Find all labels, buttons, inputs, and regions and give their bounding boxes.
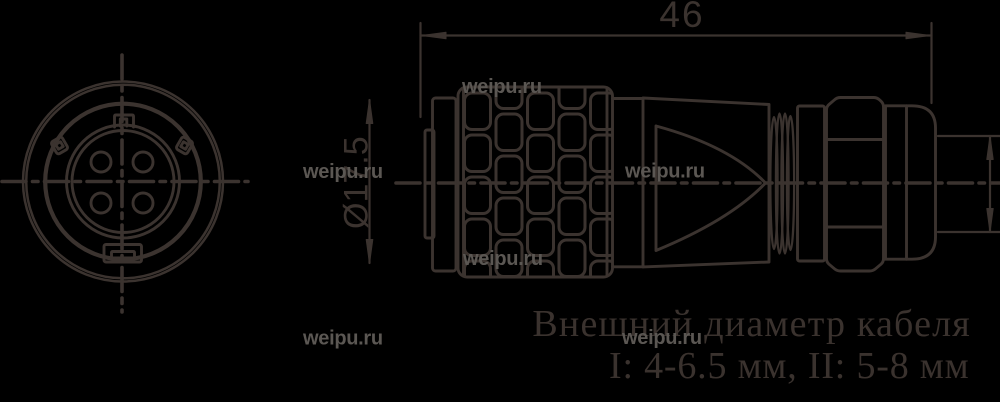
svg-text:weipu.ru: weipu.ru	[461, 76, 542, 98]
svg-text:46: 46	[659, 0, 704, 35]
svg-text:weipu.ru: weipu.ru	[302, 328, 383, 350]
svg-text:weipu.ru: weipu.ru	[624, 161, 705, 183]
svg-text:weipu.ru: weipu.ru	[302, 161, 383, 183]
svg-text:weipu.ru: weipu.ru	[462, 248, 543, 270]
svg-text:Внешний диаметр кабеля: Внешний диаметр кабеля	[532, 303, 971, 345]
svg-text:I: 4-6.5 мм, II: 5-8 мм: I: 4-6.5 мм, II: 5-8 мм	[609, 345, 969, 387]
svg-text:weipu.ru: weipu.ru	[621, 327, 702, 349]
